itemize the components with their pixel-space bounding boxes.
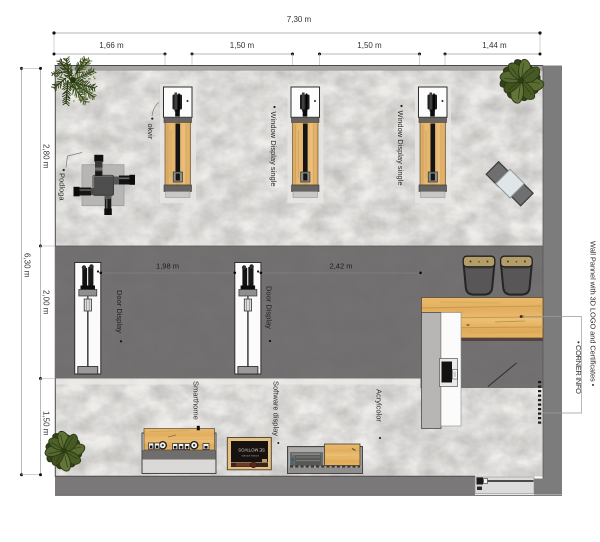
svg-text:Door Display: Door Display [265, 286, 274, 329]
svg-text:Window Display single: Window Display single [269, 112, 278, 187]
svg-text:SE MOTIVOS: SE MOTIVOS [238, 448, 265, 453]
svg-text:1,66 m: 1,66 m [99, 41, 124, 50]
svg-text:zimske ponude: zimske ponude [241, 454, 259, 458]
svg-text:2,80 m: 2,80 m [42, 144, 51, 169]
svg-text:Wall Pannel with 3D LOGO and C: Wall Pannel with 3D LOGO and Certificate… [589, 241, 598, 387]
svg-text:Window Display single: Window Display single [396, 111, 405, 186]
svg-text:Door Display: Door Display [115, 290, 124, 333]
svg-text:Podloga: Podloga [58, 173, 67, 201]
svg-text:1,50 m: 1,50 m [42, 411, 51, 436]
svg-text:Acrylcolor: Acrylcolor [375, 389, 384, 422]
svg-text:6,30 m: 6,30 m [23, 253, 32, 278]
svg-text:• CORNER INFO: • CORNER INFO [574, 341, 583, 394]
svg-text:Smarthome: Smarthome [192, 381, 201, 420]
svg-text:7,30 m: 7,30 m [287, 15, 312, 24]
svg-text:1,50 m: 1,50 m [230, 41, 255, 50]
svg-text:okvir: okvir [146, 124, 155, 140]
svg-text:1,98 m: 1,98 m [156, 262, 179, 271]
svg-text:1,50 m: 1,50 m [357, 41, 382, 50]
svg-text:1,44 m: 1,44 m [482, 41, 507, 50]
svg-text:Software display: Software display [272, 381, 281, 436]
svg-text:2,42 m: 2,42 m [330, 262, 353, 271]
svg-text:2,00 m: 2,00 m [42, 290, 51, 315]
